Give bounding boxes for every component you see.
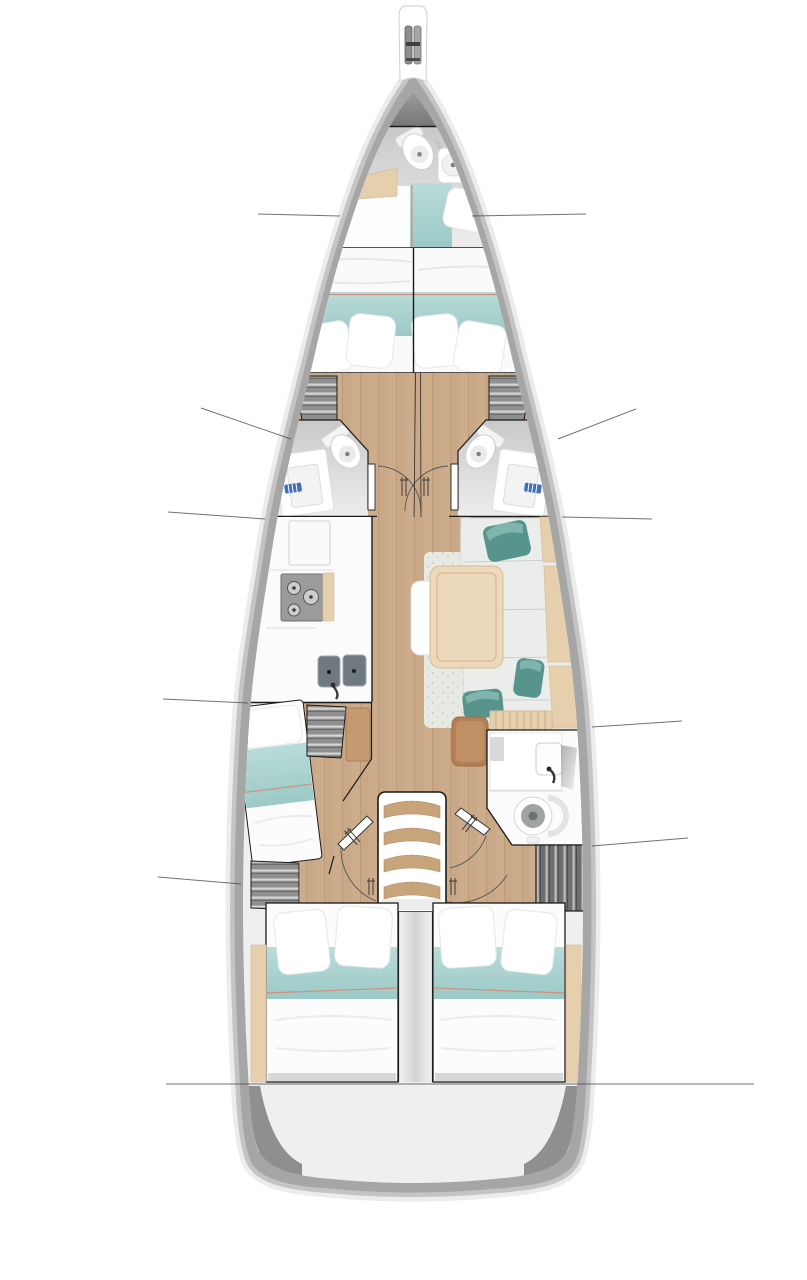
shelf-unit <box>307 705 346 758</box>
companionway-stairs <box>378 792 446 912</box>
pillow <box>500 908 558 975</box>
wood-step-shelf <box>490 711 552 730</box>
callout-line <box>258 214 340 216</box>
wood-trim <box>323 573 334 621</box>
teal-blanket <box>240 742 315 808</box>
cabin-aft-port <box>251 903 398 1082</box>
callout-line <box>592 838 688 846</box>
callout-line <box>472 214 586 216</box>
engine-column <box>399 912 433 1082</box>
callout-line <box>562 517 652 519</box>
wood-trim <box>251 945 266 1082</box>
stove-icon <box>281 574 323 621</box>
nav-seat <box>452 717 488 766</box>
pillow <box>334 905 393 969</box>
callout-line <box>168 512 265 519</box>
pillow <box>438 905 497 969</box>
callout-line <box>592 721 682 727</box>
berth-foot-shadow <box>435 1073 563 1081</box>
cabinet-door <box>289 521 330 565</box>
salon-table <box>430 566 503 668</box>
pillow <box>452 319 508 377</box>
callout-line <box>558 409 636 439</box>
forward-heads-zone <box>262 373 564 518</box>
cabin-aft-starboard <box>433 903 581 1082</box>
cabinet <box>346 708 370 761</box>
bowsprit <box>399 6 427 82</box>
pillow <box>345 313 396 370</box>
accent-pillow <box>512 657 545 699</box>
yacht-floor-plan <box>0 0 807 1280</box>
berth-foot-shadow <box>268 1073 396 1081</box>
callout-line <box>201 408 291 439</box>
floor-plan-stage <box>0 0 807 1280</box>
shelf-unit <box>536 845 586 911</box>
pillow <box>273 908 331 975</box>
